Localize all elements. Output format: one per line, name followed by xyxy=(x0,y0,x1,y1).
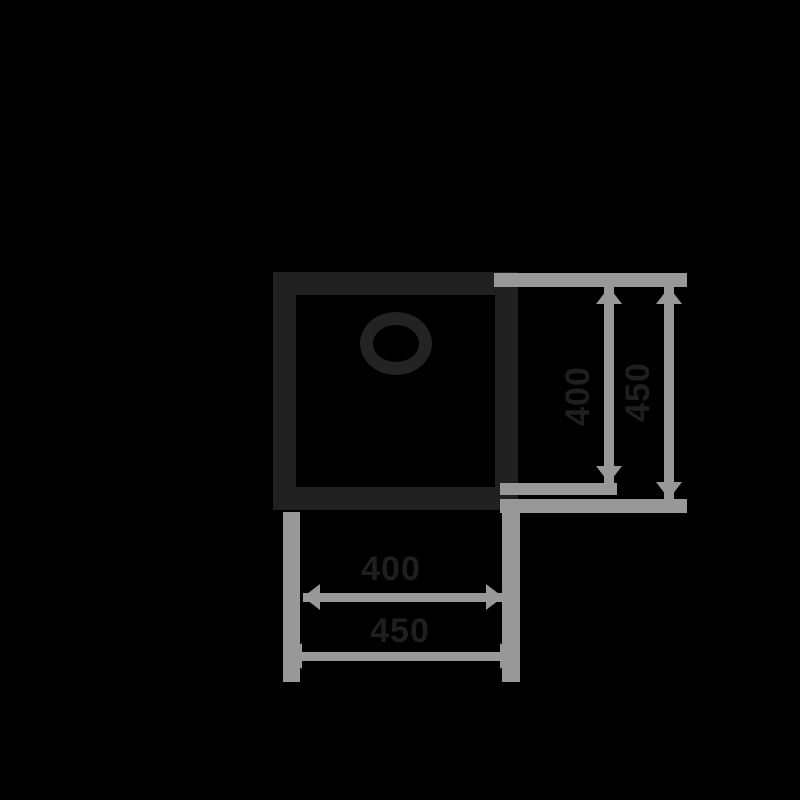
extension-line-right-inner xyxy=(500,483,617,495)
dimension-value-bottom-outer: 450 xyxy=(350,611,450,651)
arrowhead-down-icon xyxy=(656,482,682,499)
drain-circle xyxy=(360,312,432,375)
arrowhead-up-icon xyxy=(656,287,682,304)
arrowhead-right-icon xyxy=(486,584,503,610)
drawing-canvas: 400 450 400 450 xyxy=(0,0,800,800)
dimension-value-bottom-inner: 400 xyxy=(341,549,441,589)
arrowhead-left-icon xyxy=(285,643,302,669)
dimension-line-bottom-outer xyxy=(285,652,517,661)
dimension-line-bottom-inner xyxy=(303,593,503,602)
extension-line-top-right xyxy=(494,273,687,287)
extension-line-right-outer xyxy=(500,499,687,513)
dimension-value-right-outer: 450 xyxy=(598,352,678,432)
arrowhead-up-icon xyxy=(596,287,622,304)
arrowhead-left-icon xyxy=(303,584,320,610)
arrowhead-down-icon xyxy=(596,466,622,483)
drain-notch xyxy=(379,339,392,353)
arrowhead-right-icon xyxy=(500,643,517,669)
sink-outline xyxy=(273,272,518,510)
